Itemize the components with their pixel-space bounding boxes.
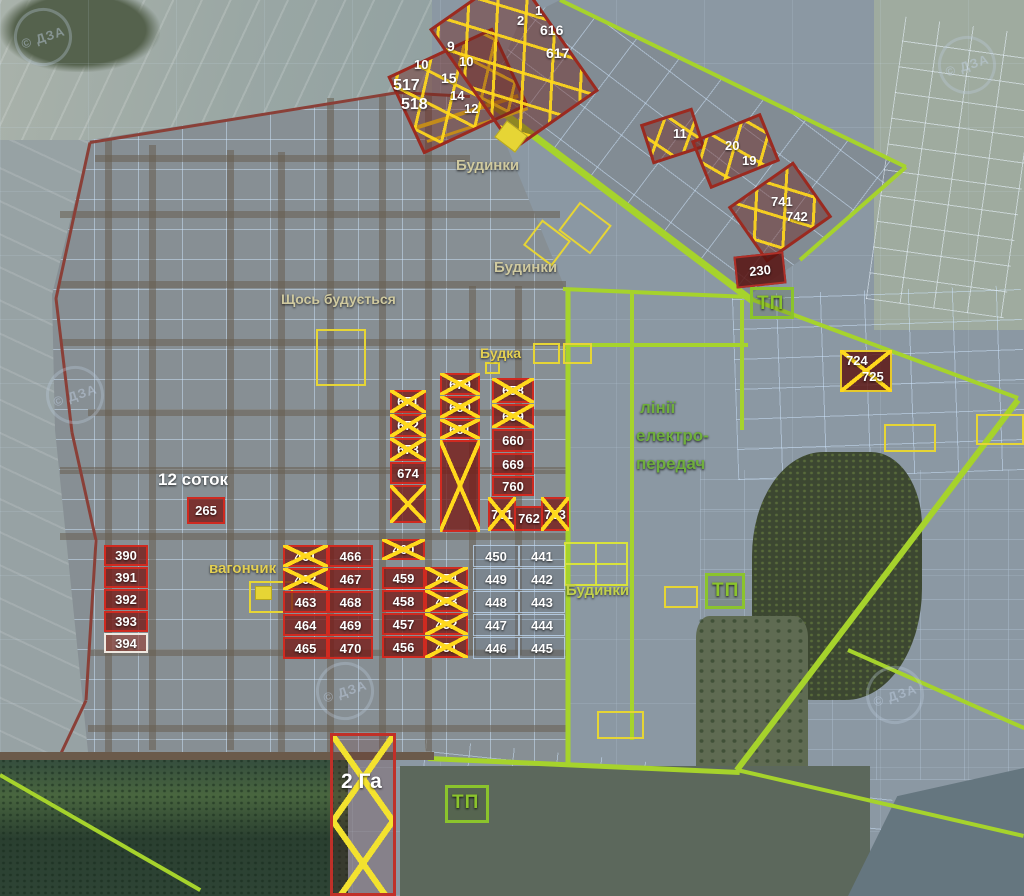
plot-number: 463 xyxy=(295,596,317,609)
plot-452: 452 xyxy=(425,613,468,635)
label-power-lines-2: електро- xyxy=(636,427,709,444)
label-tp-2: ТП xyxy=(712,581,739,600)
plot-number: 679 xyxy=(449,378,471,391)
label-budynky-3: Будинки xyxy=(566,583,629,598)
plot-680: 680 xyxy=(440,396,480,418)
plot-number: 443 xyxy=(531,596,553,609)
label-vagonchyk: вагончик xyxy=(209,561,276,576)
label-budynky-1: Будинки xyxy=(456,158,519,173)
plot-number: 452 xyxy=(436,618,458,631)
plot-390: 390 xyxy=(104,545,148,566)
label-budka: Будка xyxy=(480,346,521,360)
plot-393: 393 xyxy=(104,611,148,632)
plot-461: 461 xyxy=(283,545,328,567)
plot-number: 445 xyxy=(531,642,553,655)
outline-6 xyxy=(976,414,1024,445)
plot-number: 673 xyxy=(397,443,419,456)
plot-number: 462 xyxy=(295,573,317,586)
plot-number: 464 xyxy=(295,619,317,632)
plot-number: 468 xyxy=(340,596,362,609)
num-14: 14 xyxy=(450,89,464,102)
street xyxy=(60,533,566,540)
plot-number: 393 xyxy=(115,615,137,628)
plot-660: 660 xyxy=(492,429,534,452)
plot-number: 465 xyxy=(295,642,317,655)
plot-unnumbered xyxy=(390,485,426,523)
plot-number: 761 xyxy=(491,508,513,521)
plot-number: 446 xyxy=(485,642,507,655)
plot-441: 441 xyxy=(519,545,565,567)
plot-number: 671 xyxy=(397,395,419,408)
plot-number: 450 xyxy=(485,550,507,563)
plot-unnumbered xyxy=(440,440,480,532)
plot-number: 660 xyxy=(502,434,524,447)
num-518: 518 xyxy=(401,97,428,113)
plot-number: 681 xyxy=(449,423,471,436)
street xyxy=(105,140,112,752)
plot-number: 763 xyxy=(544,508,566,521)
label-12-sotok: 12 соток xyxy=(158,471,228,488)
plot-444: 444 xyxy=(519,614,565,636)
plot-470: 470 xyxy=(328,637,373,659)
plot-230: 230 xyxy=(733,251,786,288)
plot-number: 669 xyxy=(502,458,524,471)
plot-number: 447 xyxy=(485,619,507,632)
plot-467: 467 xyxy=(328,568,373,590)
street xyxy=(60,467,566,474)
plot-458: 458 xyxy=(382,590,425,612)
num-20: 20 xyxy=(725,139,739,152)
street xyxy=(227,150,234,750)
label-tp-3: ТП xyxy=(452,793,479,812)
num-12: 12 xyxy=(464,102,478,115)
plot-number: 459 xyxy=(393,572,415,585)
plot-number: 392 xyxy=(115,593,137,606)
plot-number: 451 xyxy=(436,641,458,654)
budka-outline xyxy=(485,362,500,374)
plot-457: 457 xyxy=(382,613,425,635)
plot-445: 445 xyxy=(519,637,565,659)
plot-265: 265 xyxy=(187,497,225,524)
plot-number: 674 xyxy=(397,467,419,480)
plot-761: 761 xyxy=(488,497,516,531)
label-budynky-2: Будинки xyxy=(494,260,557,275)
plot-number: 453 xyxy=(436,595,458,608)
num-9: 9 xyxy=(447,39,455,53)
plot-number: 394 xyxy=(115,637,137,650)
plot-462: 462 xyxy=(283,568,328,590)
outline-4 xyxy=(597,711,644,739)
plot-464: 464 xyxy=(283,614,328,636)
green-v-742 xyxy=(740,300,744,430)
num-10a: 10 xyxy=(414,58,428,71)
plot-669: 669 xyxy=(492,453,534,475)
num-724: 724 xyxy=(846,354,868,367)
plot-466: 466 xyxy=(328,545,373,567)
plot-448: 448 xyxy=(473,591,519,613)
plot-number: 469 xyxy=(340,619,362,632)
label-tp-1: ТП xyxy=(757,294,784,313)
plot-number: 230 xyxy=(749,262,772,277)
num-517: 517 xyxy=(393,78,420,94)
plot-number: 658 xyxy=(502,384,524,397)
plot-392: 392 xyxy=(104,589,148,610)
num-19: 19 xyxy=(742,154,756,167)
plot-451: 451 xyxy=(425,636,468,658)
plot-number: 441 xyxy=(531,550,553,563)
plot-679: 679 xyxy=(440,373,480,395)
plot-456: 456 xyxy=(382,636,425,658)
plot-673: 673 xyxy=(390,438,426,461)
plot-number: 458 xyxy=(393,595,415,608)
outline-1 xyxy=(533,343,560,364)
plot-number: 391 xyxy=(115,571,137,584)
plot-442: 442 xyxy=(519,568,565,590)
num-15: 15 xyxy=(441,71,457,85)
plot-number: 454 xyxy=(436,572,458,585)
label-shchos-buduyetsya: Щось будується xyxy=(281,292,396,306)
label-power-lines-3: передач xyxy=(636,455,705,472)
plot-number: 461 xyxy=(295,550,317,563)
street xyxy=(60,281,566,288)
plot-number: 466 xyxy=(340,550,362,563)
plot-672: 672 xyxy=(390,414,426,437)
plot-number: 444 xyxy=(531,619,553,632)
plot-762: 762 xyxy=(514,506,544,531)
outline-3 xyxy=(664,586,698,608)
street xyxy=(278,152,285,753)
num-725: 725 xyxy=(862,370,884,383)
plot-460: 460 xyxy=(382,539,425,560)
plot-number: 760 xyxy=(502,480,524,493)
vagonchyk-marker xyxy=(255,586,272,600)
street xyxy=(149,145,156,750)
outline-5 xyxy=(884,424,936,452)
crossed-strip-2ga xyxy=(330,733,396,896)
num-617: 617 xyxy=(546,46,569,60)
plot-463: 463 xyxy=(283,591,328,613)
plot-760: 760 xyxy=(492,476,534,496)
plot-454: 454 xyxy=(425,567,468,589)
plot-394: 394 xyxy=(104,633,148,653)
plot-671: 671 xyxy=(390,390,426,413)
green-v-632 xyxy=(630,292,634,740)
plot-number: 672 xyxy=(397,419,419,432)
green-h-345 xyxy=(565,343,748,347)
plot-number: 449 xyxy=(485,573,507,586)
plot-447: 447 xyxy=(473,614,519,636)
num-10b: 10 xyxy=(459,55,473,68)
plot-number: 442 xyxy=(531,573,553,586)
plot-446: 446 xyxy=(473,637,519,659)
map-canvas[interactable]: 6716726736746796806816586596606697607617… xyxy=(0,0,1024,896)
plot-391: 391 xyxy=(104,567,148,588)
plot-449: 449 xyxy=(473,568,519,590)
plot-658: 658 xyxy=(492,378,534,403)
num-616: 616 xyxy=(540,23,563,37)
num-1: 1 xyxy=(535,4,542,17)
plot-681: 681 xyxy=(440,419,480,439)
label-power-lines-1: лінії xyxy=(640,399,675,416)
plot-number: 390 xyxy=(115,549,137,562)
plot-number: 659 xyxy=(502,410,524,423)
plot-number: 265 xyxy=(195,504,217,517)
houses-grid-outline xyxy=(564,542,628,586)
num-742: 742 xyxy=(786,210,808,223)
num-2: 2 xyxy=(517,14,524,27)
plot-450: 450 xyxy=(473,545,519,567)
construction-outline xyxy=(316,329,366,386)
num-11: 11 xyxy=(673,127,687,140)
plot-659: 659 xyxy=(492,404,534,428)
plot-number: 456 xyxy=(393,641,415,654)
plot-763: 763 xyxy=(541,497,569,531)
plot-465: 465 xyxy=(283,637,328,659)
plot-459: 459 xyxy=(382,567,425,589)
plot-number: 457 xyxy=(393,618,415,631)
plot-number: 467 xyxy=(340,573,362,586)
plot-number: 762 xyxy=(518,512,540,525)
plot-468: 468 xyxy=(328,591,373,613)
plot-674: 674 xyxy=(390,462,426,484)
outline-2 xyxy=(563,343,592,364)
plot-453: 453 xyxy=(425,590,468,612)
num-741: 741 xyxy=(771,195,793,208)
plot-443: 443 xyxy=(519,591,565,613)
label-2-ga: 2 Га xyxy=(341,771,382,792)
street xyxy=(60,211,560,218)
plot-number: 470 xyxy=(340,642,362,655)
plot-number: 448 xyxy=(485,596,507,609)
plot-469: 469 xyxy=(328,614,373,636)
plot-number: 680 xyxy=(449,401,471,414)
plot-number: 460 xyxy=(393,543,415,556)
